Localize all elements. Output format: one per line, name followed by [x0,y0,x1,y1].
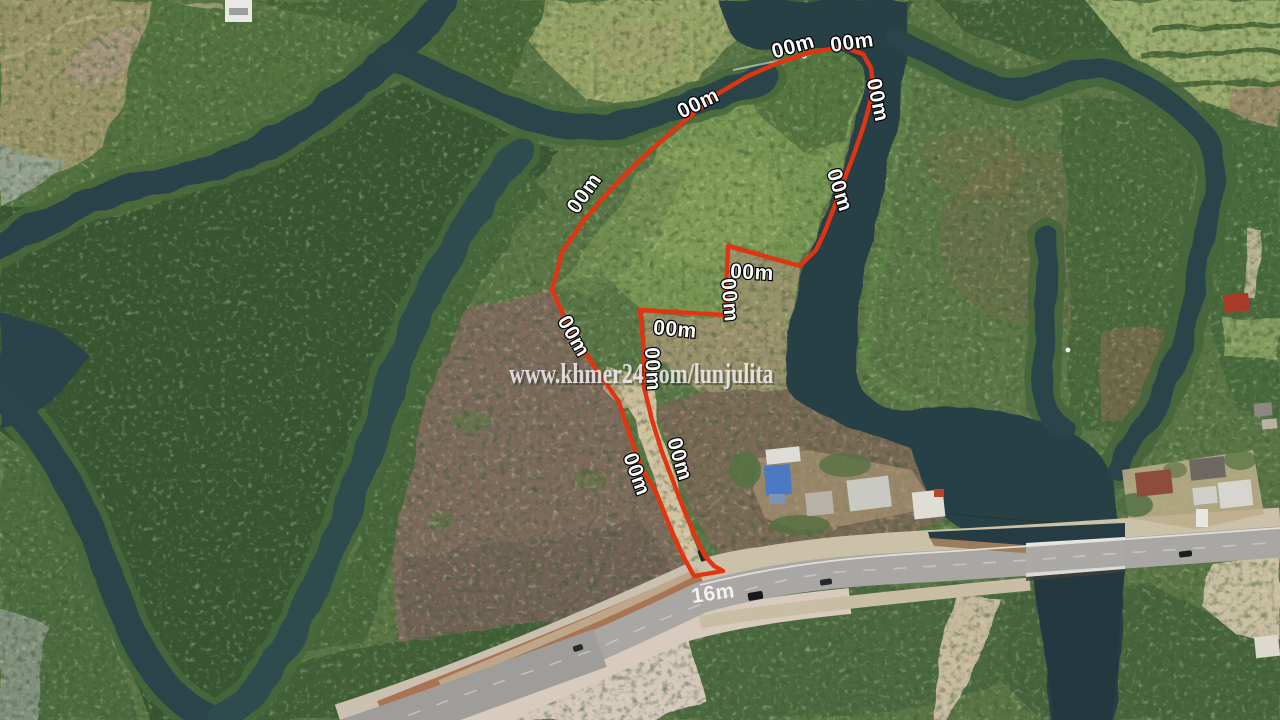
svg-text:00m: 00m [652,316,697,343]
svg-text:00m: 00m [716,277,743,322]
svg-text:00m: 00m [640,347,665,392]
